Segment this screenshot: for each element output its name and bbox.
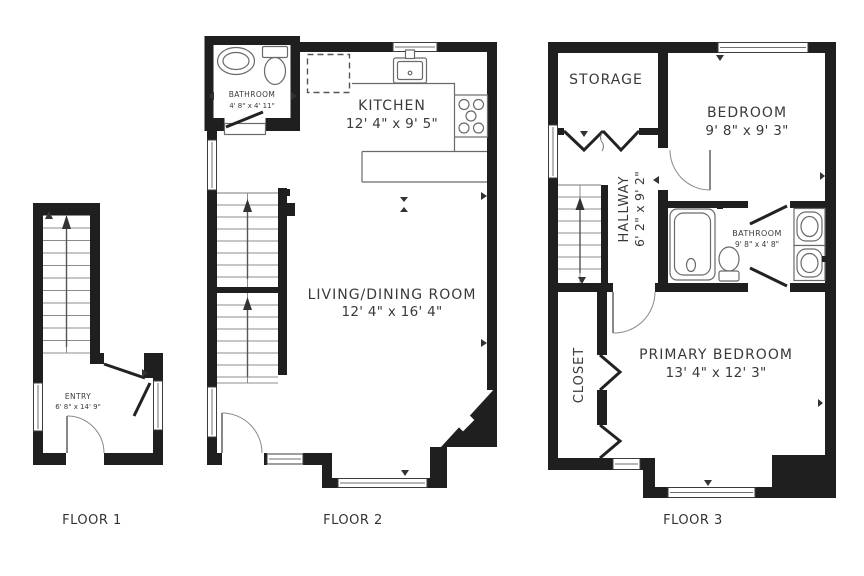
floor-2-plan: BATHROOM 4' 8" x 4' 11" KITCHEN 12' 4" x… [205,36,498,488]
room-label-storage: STORAGE [569,72,643,88]
room-label-kitchen: KITCHEN [358,98,426,114]
room-dims-bedroom: 9' 8" x 9' 3" [705,123,788,139]
room-label-entry: ENTRY [65,392,91,401]
floorplan-svg: ENTRY 6' 8" x 14' 9" [0,0,864,576]
room-label-living-dining: LIVING/DINING ROOM [308,287,477,303]
room-dims-living-dining: 12' 4" x 16' 4" [341,304,442,320]
room-dims-entry: 6' 8" x 14' 9" [55,403,101,411]
floor-1-walls [33,203,163,465]
primary-bedroom-door [613,292,655,333]
kitchen-sink-icon [394,50,427,83]
bathroom-door-leaf [750,268,787,286]
stove-icon [455,95,488,137]
floor-1-staircase [43,211,90,353]
room-label-primary-bedroom: PRIMARY BEDROOM [639,347,793,363]
floor-1-plan: ENTRY 6' 8" x 14' 9" [33,203,163,465]
toilet-icon [263,47,288,85]
room-dims-hallway: 6' 2" x 9' 2" [632,171,647,247]
room-label-closet: CLOSET [572,347,587,404]
caption-floor-1: FLOOR 1 [62,513,122,528]
room-dims-primary-bedroom: 13' 4" x 12' 3" [665,365,766,381]
bathroom-door-leaf [750,206,787,224]
floor-3-plan: STORAGE BEDROOM 9' 8" x 9' 3" HALLWAY 6'… [548,42,836,498]
floor-2-doors [222,192,487,453]
room-label-bathroom-f2: BATHROOM [229,90,276,99]
room-label-hallway-group: HALLWAY 6' 2" x 9' 2" [617,171,647,247]
toilet-icon [719,247,739,281]
room-dims-bathroom-f3: 9' 8" x 4' 8" [735,240,779,249]
stairs-up-arrow [243,297,252,310]
room-label-bathroom-f3: BATHROOM [732,229,782,238]
floor-captions: FLOOR 1 FLOOR 2 FLOOR 3 [62,513,723,528]
caption-floor-2: FLOOR 2 [323,513,383,528]
room-dims-kitchen: 12' 4" x 9' 5" [346,116,438,132]
bathtub-icon [670,209,715,280]
stairs-up-arrow [62,215,71,229]
stairs-up-arrow [576,197,585,210]
room-label-bedroom: BEDROOM [707,105,787,121]
floor-2-corner-fireplace [441,386,497,447]
stairs-down-arrow [578,277,586,284]
bedroom-door [653,150,710,190]
floor-3-staircase [558,185,601,284]
room-dims-bathroom-f2: 4' 8" x 4' 11" [229,102,275,110]
caption-floor-3: FLOOR 3 [663,513,723,528]
double-sink-icon [794,209,826,281]
room-label-hallway: HALLWAY [617,176,632,243]
floorplan-image: ENTRY 6' 8" x 14' 9" [0,0,864,576]
refrigerator-icon [308,55,350,93]
storage-bifold-doors [564,131,639,151]
sink-icon [218,48,255,75]
